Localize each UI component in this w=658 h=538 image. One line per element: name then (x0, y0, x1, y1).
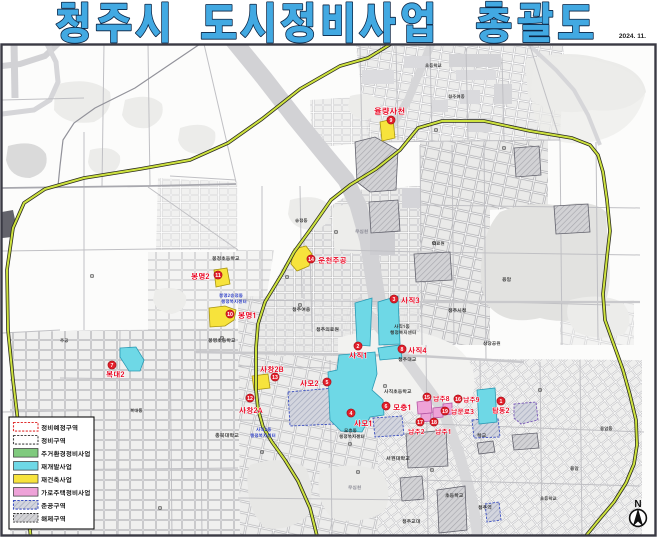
svg-text:11: 11 (215, 273, 221, 279)
svg-text:9: 9 (390, 118, 393, 124)
svg-text:5: 5 (326, 380, 329, 386)
svg-text:15: 15 (424, 395, 430, 401)
svg-text:3: 3 (393, 297, 396, 303)
svg-text:1: 1 (500, 399, 503, 405)
svg-text:6: 6 (385, 404, 388, 410)
svg-text:7: 7 (111, 363, 114, 369)
svg-text:19: 19 (442, 409, 448, 415)
svg-text:13: 13 (272, 375, 278, 381)
svg-text:12: 12 (247, 396, 253, 402)
svg-text:N: N (634, 499, 641, 510)
svg-text:10: 10 (227, 312, 233, 318)
svg-text:17: 17 (417, 420, 423, 426)
svg-text:18: 18 (431, 420, 437, 426)
svg-text:2: 2 (357, 344, 360, 350)
svg-text:16: 16 (455, 397, 461, 403)
svg-text:2024. 11.: 2024. 11. (619, 33, 646, 40)
svg-text:4: 4 (350, 411, 353, 417)
svg-text:14: 14 (308, 257, 314, 263)
svg-text:8: 8 (401, 347, 404, 353)
